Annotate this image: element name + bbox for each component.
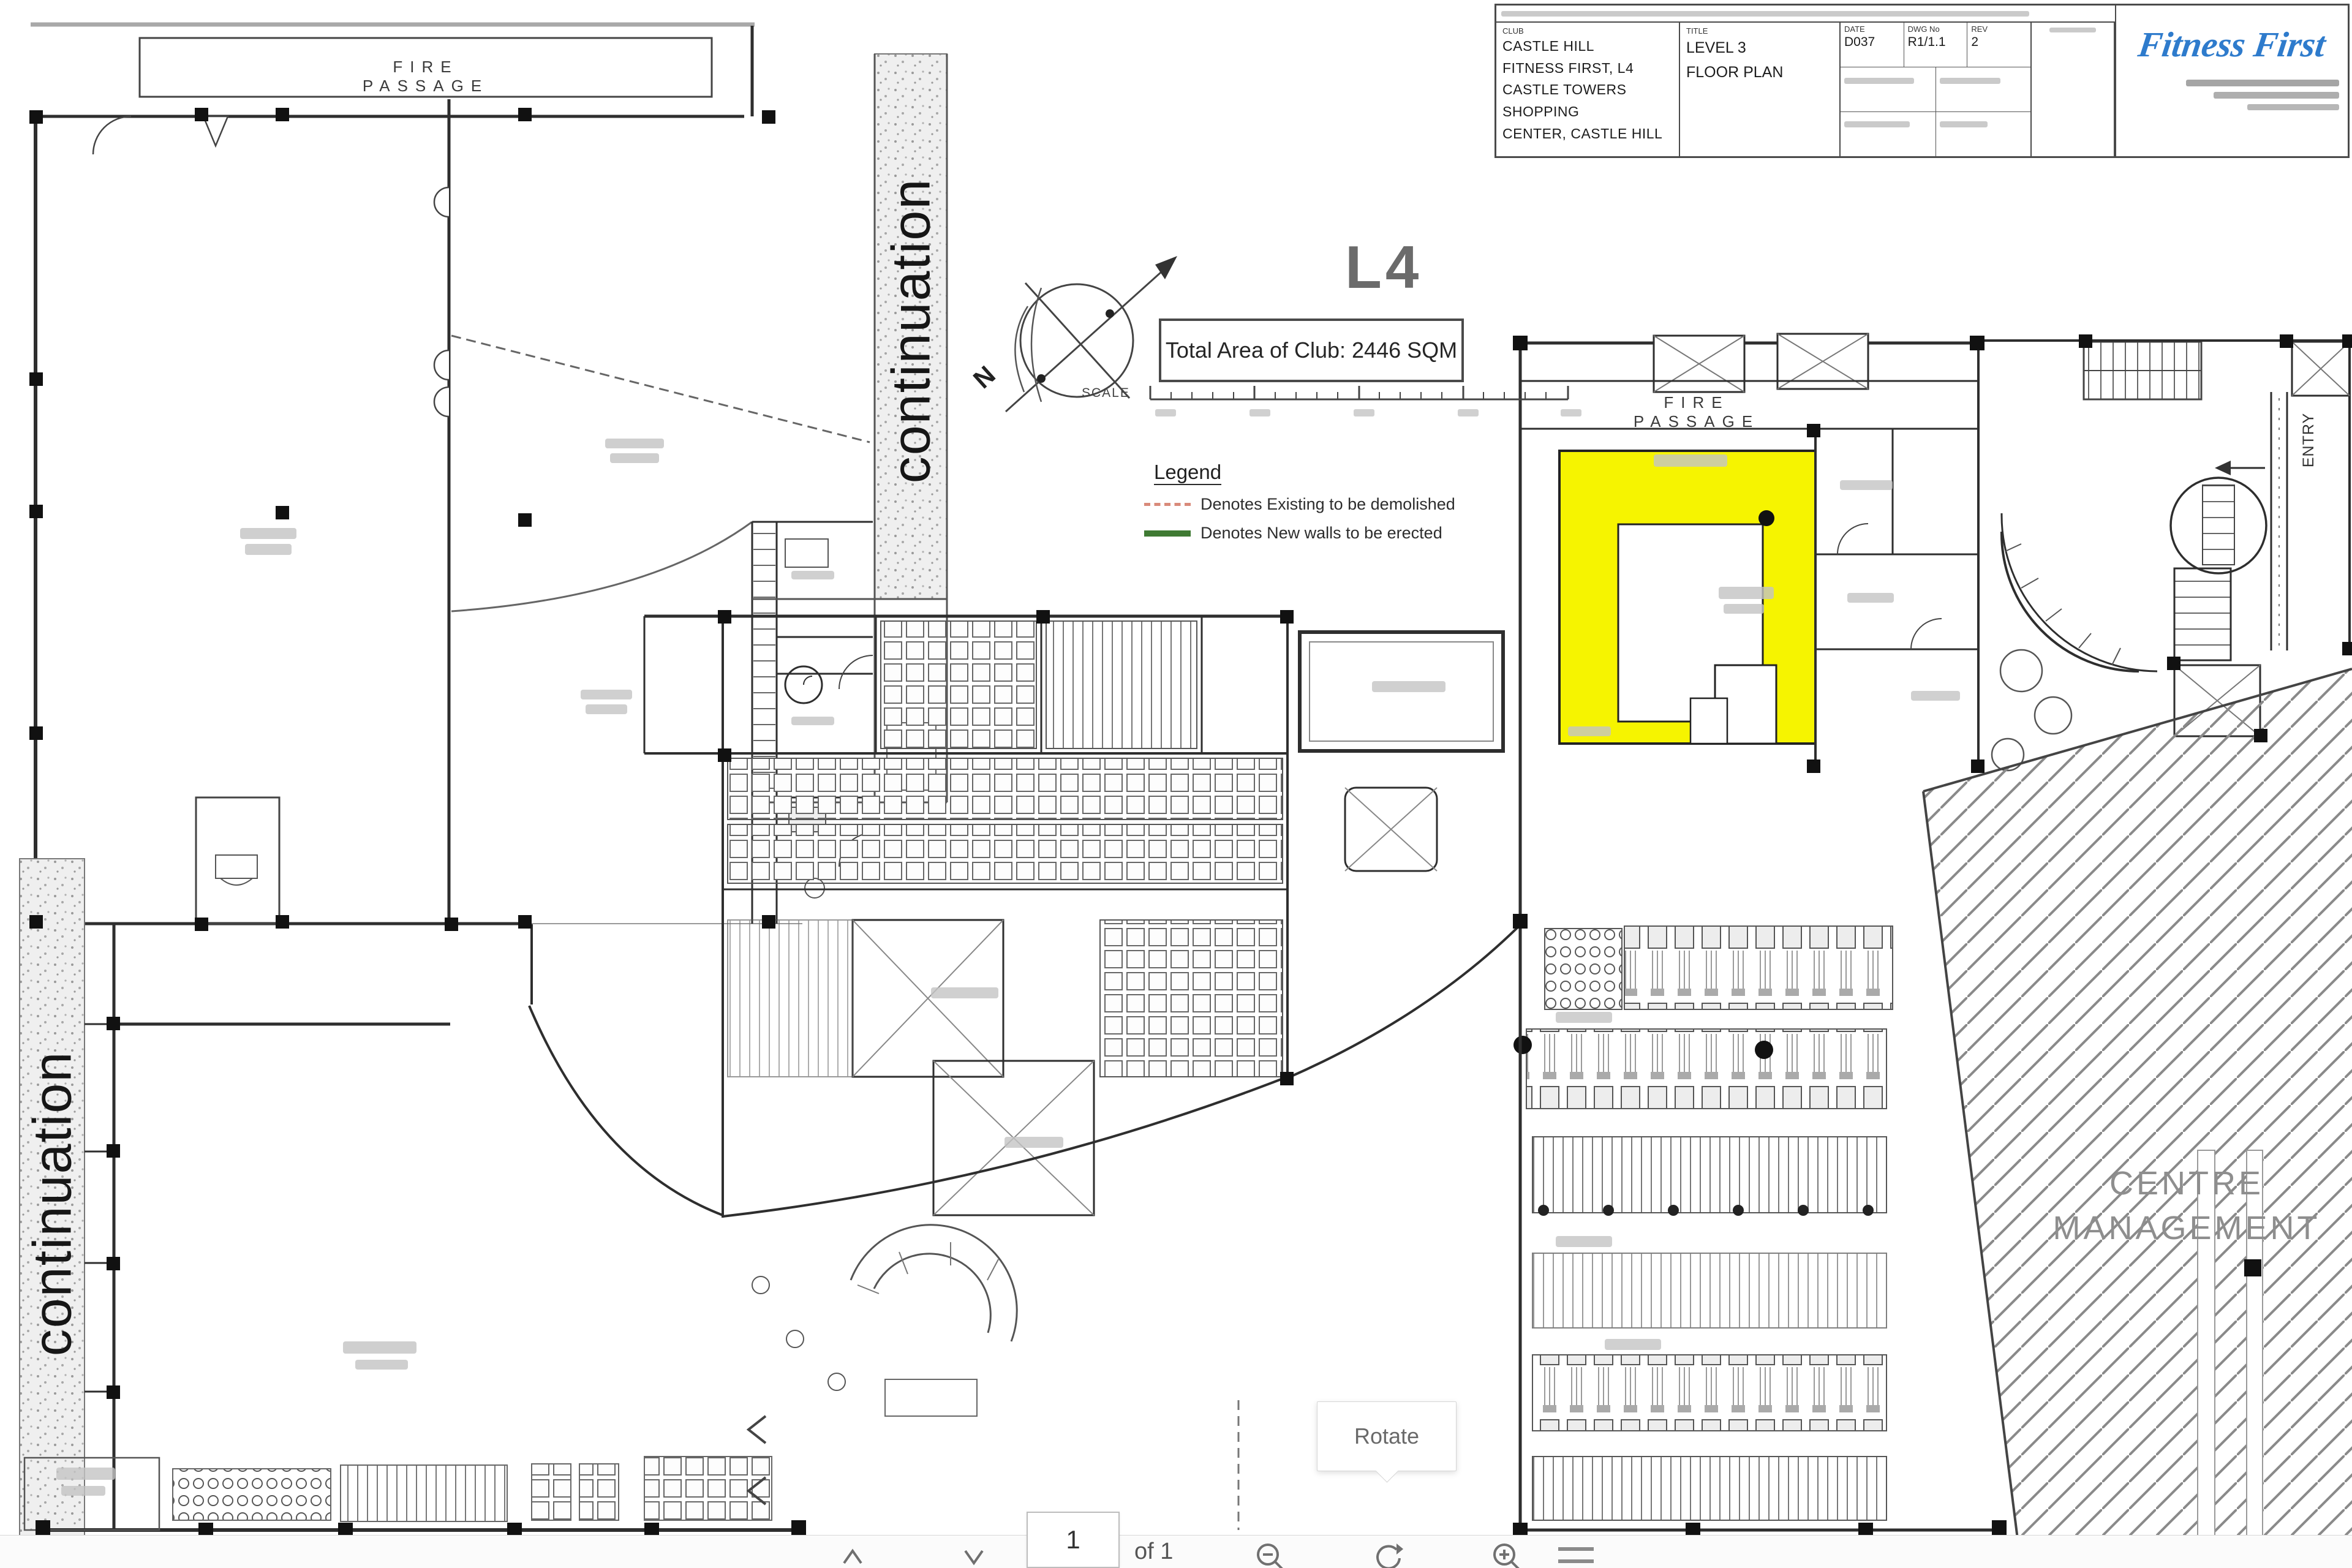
scale-bar [1150, 386, 1568, 399]
centre-management-zone [1923, 669, 2352, 1568]
more-options-button[interactable] [1557, 1545, 1596, 1568]
previous-page-button[interactable] [838, 1541, 867, 1568]
logo-address-lines [2125, 80, 2339, 110]
page-number-input[interactable] [1027, 1512, 1120, 1568]
zoom-in-button[interactable] [1490, 1540, 1524, 1568]
viewer-toolbar [0, 1535, 2352, 1568]
fire-passage-label-top-left: FIRE PASSAGE [334, 58, 518, 96]
plan-bottom-left-wing [24, 924, 1238, 1530]
demolished-swatch [1144, 503, 1191, 506]
zoom-out-icon [1253, 1540, 1287, 1568]
legend: Legend Denotes Existing to be demolished… [1144, 461, 1499, 543]
title-block-rev-col [2032, 23, 2115, 156]
chevron-down-icon [959, 1542, 989, 1568]
rotate-button[interactable] [1372, 1540, 1406, 1568]
title-block-fields: DATE D037 DWG No R1/1.1 REV 2 [1841, 23, 2032, 156]
next-page-button[interactable] [959, 1542, 989, 1568]
total-area-box: Total Area of Club: 2446 SQM [1159, 318, 1464, 382]
title-block-logo-cell: Fitness First [2116, 6, 2348, 156]
entry-label: ENTRY [2291, 397, 2327, 483]
menu-lines-icon [1557, 1545, 1596, 1568]
title-block-club: CLUB CASTLE HILL FITNESS FIRST, L4 CASTL… [1496, 23, 1680, 156]
continuation-label-top: continuation [875, 73, 947, 588]
fire-passage-label-right: FIRE PASSAGE [1605, 393, 1789, 431]
plan-locker-block [529, 616, 1520, 1218]
centre-management-label: CENTRE MANAGEMENT [2027, 1161, 2346, 1251]
page-count-label: of 1 [1134, 1539, 1173, 1565]
legend-title: Legend [1154, 461, 1221, 485]
legend-item-new-walls: Denotes New walls to be erected [1144, 524, 1499, 543]
scale-label: SCALE [1082, 386, 1130, 401]
continuation-label-left: continuation [18, 864, 86, 1543]
document-preview-canvas: FIRE PASSAGE FIRE PASSAGE continuation c… [0, 0, 2352, 1568]
title-block-title: TITLE LEVEL 3 FLOOR PLAN [1680, 23, 1841, 156]
rotate-tooltip: Rotate [1317, 1401, 1457, 1471]
title-block-disclaimer [1496, 6, 2115, 23]
highlighted-room [1559, 451, 1815, 744]
floor-plan-drawing [0, 0, 2352, 1568]
rotate-icon [1372, 1540, 1406, 1568]
zoom-in-icon [1490, 1540, 1524, 1568]
title-block: CLUB CASTLE HILL FITNESS FIRST, L4 CASTL… [1494, 4, 2350, 158]
level-mark: L4 [1345, 233, 1422, 302]
zoom-out-button[interactable] [1253, 1540, 1287, 1568]
new-walls-swatch [1144, 530, 1191, 537]
fitness-first-logo: Fitness First [2122, 24, 2342, 65]
gym-equipment-rows [1513, 920, 2002, 1530]
legend-item-demolished: Denotes Existing to be demolished [1144, 495, 1499, 514]
chevron-up-icon [838, 1541, 867, 1568]
